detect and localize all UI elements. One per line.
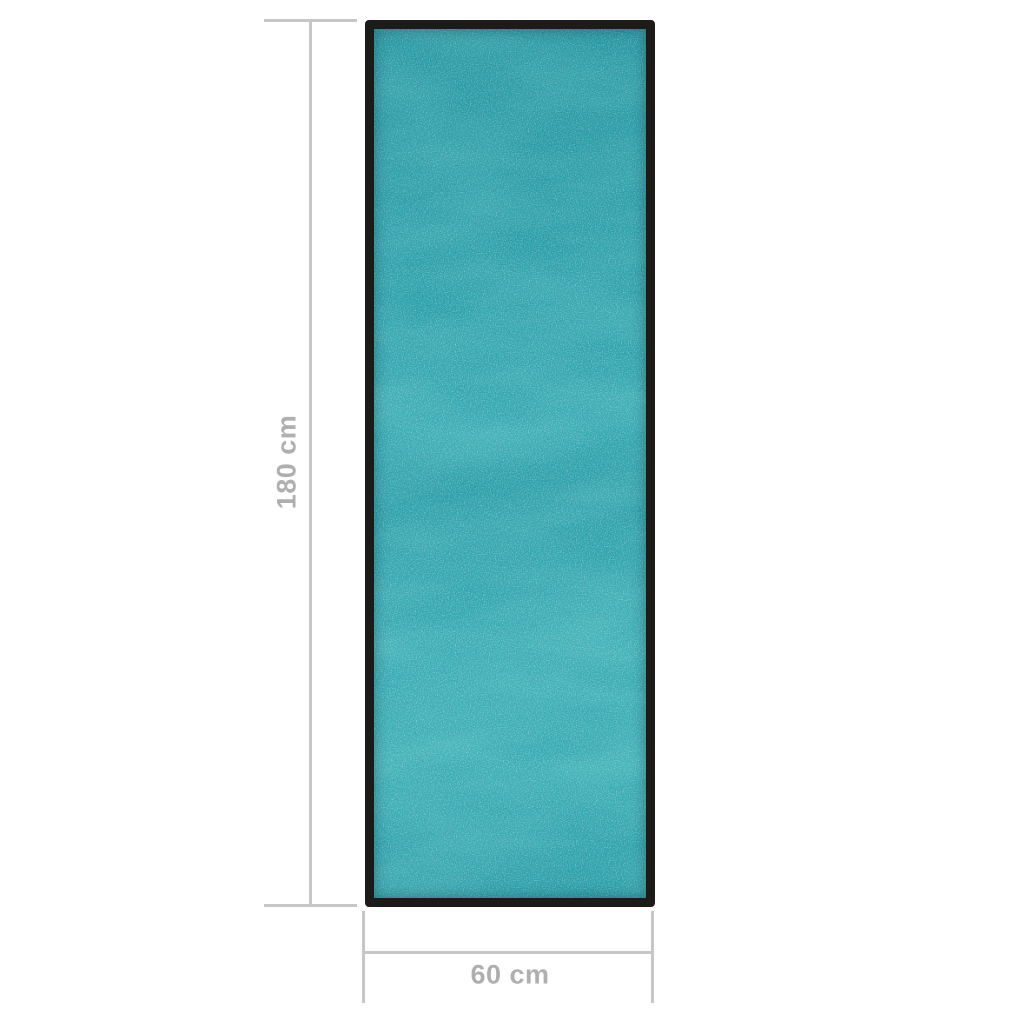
- doormat-image: [365, 20, 655, 907]
- height-dimension-label: 180 cm: [274, 415, 301, 510]
- width-dimension-right-cap: [651, 911, 654, 1003]
- width-dimension-left-cap: [362, 911, 365, 1003]
- width-dimension-label: 60 cm: [470, 962, 549, 989]
- height-dimension-bottom-cap: [264, 904, 357, 907]
- width-dimension-line: [362, 951, 654, 954]
- height-dimension-line: [309, 20, 312, 906]
- product-dimension-image: 180 cm: [0, 0, 1024, 1024]
- doormat-shading-overlay: [374, 29, 646, 898]
